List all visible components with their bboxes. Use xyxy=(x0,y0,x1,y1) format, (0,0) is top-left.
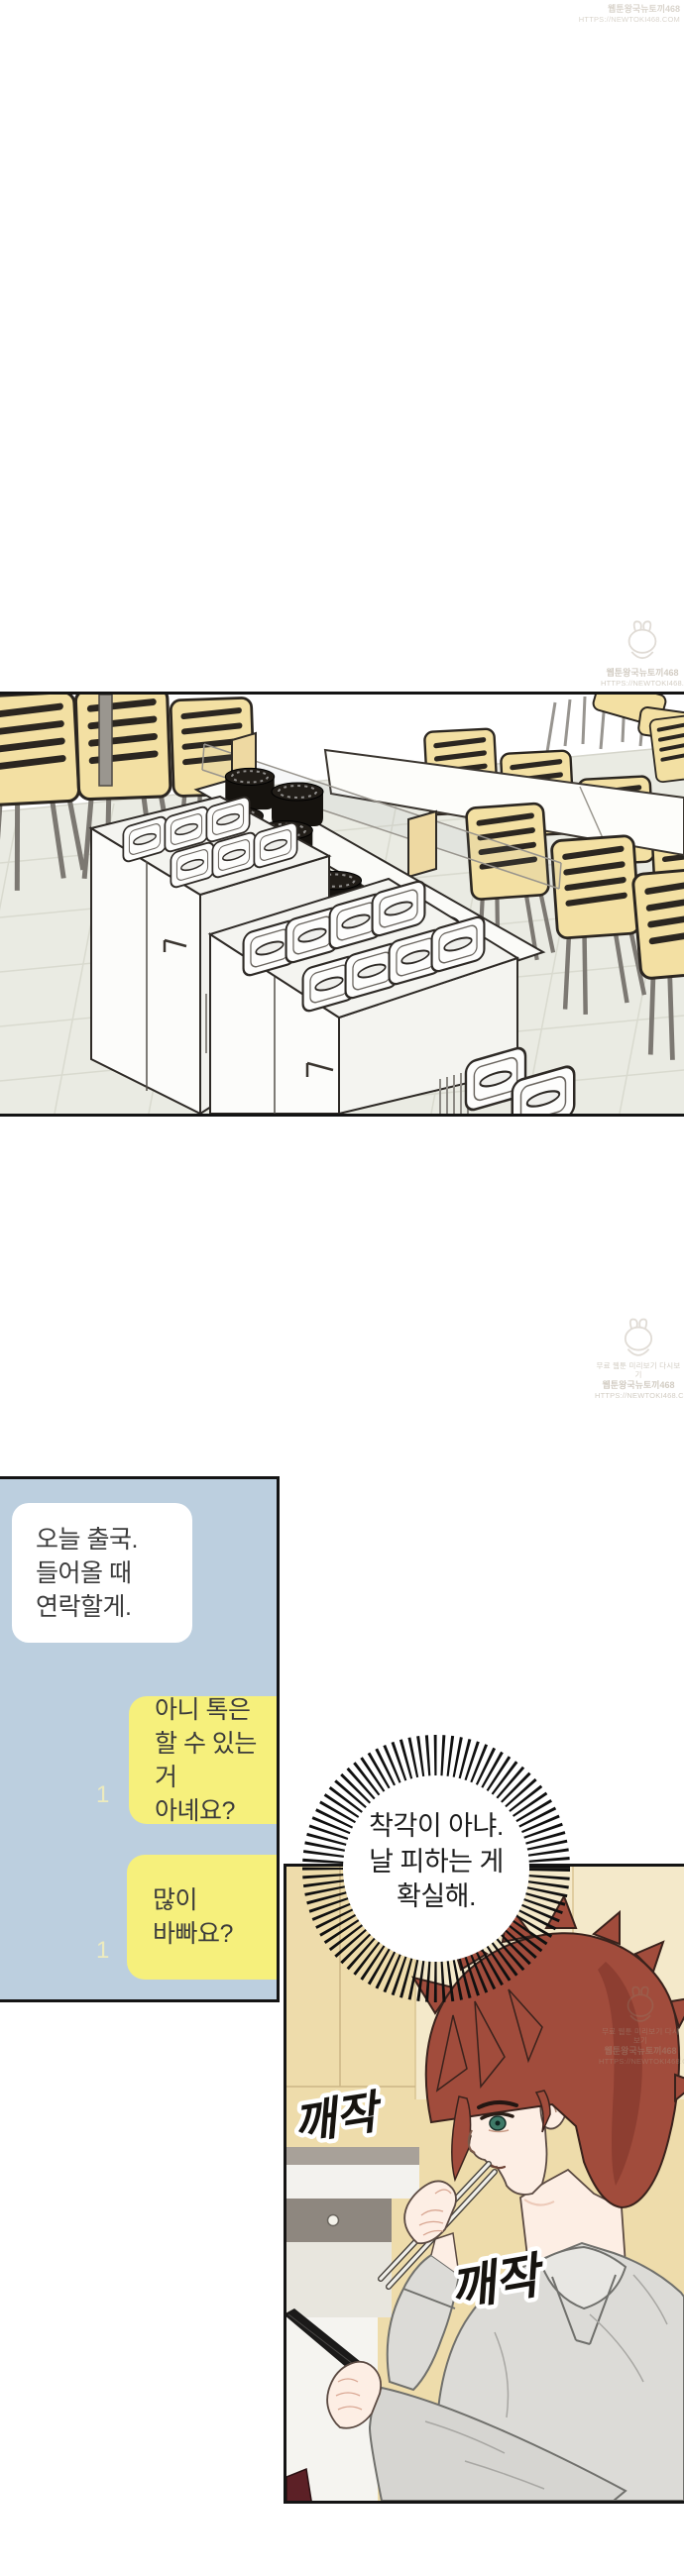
character-illustration xyxy=(286,1867,684,2501)
watermark-mascot-icon xyxy=(616,618,669,668)
watermark-mascot-icon xyxy=(612,1318,665,1361)
chat-bubble-sent-2: 많이 바빠요? xyxy=(127,1855,277,1980)
chat-bubble-sent-2-text: 많이 바빠요? xyxy=(153,1883,233,1951)
watermark-mid-2: 무료 웹툰 미리보기 다시보기 웹툰왕국뉴토끼468 HTTPS://NEWTO… xyxy=(595,1318,682,1400)
chat-bubble-sent-1: 아니 톡은 할 수 있는 거 아녜요? xyxy=(129,1696,277,1824)
chat-panel: 오늘 출국. 들어올 때 연락할게. 1 아니 톡은 할 수 있는 거 아녜요?… xyxy=(0,1476,280,2002)
chat-bubble-received: 오늘 출국. 들어올 때 연락할게. xyxy=(12,1503,192,1643)
chat-bubble-sent-1-text: 아니 톡은 할 수 있는 거 아녜요? xyxy=(155,1693,257,1828)
unread-count-1: 1 xyxy=(96,1781,109,1809)
cafeteria-illustration xyxy=(0,695,684,1114)
webtoon-page: 웹툰왕국뉴토끼468 HTTPS://NEWTOKI468.COM xyxy=(0,0,684,2576)
watermark-site-name: 웹툰왕국뉴토끼468 xyxy=(579,4,680,15)
watermark-site-url: HTTPS://NEWTOKI468.COM xyxy=(579,15,680,24)
watermark-mid-1: 웹툰왕국뉴토끼468 HTTPS://NEWTOKI468.COM xyxy=(601,618,684,689)
cafeteria-panel xyxy=(0,692,684,1117)
chat-bubble-received-text: 오늘 출국. 들어올 때 연락할게. xyxy=(36,1523,138,1624)
character-panel xyxy=(284,1864,684,2504)
unread-count-2: 1 xyxy=(96,1937,109,1965)
watermark-top: 웹툰왕국뉴토끼468 HTTPS://NEWTOKI468.COM xyxy=(579,4,680,25)
